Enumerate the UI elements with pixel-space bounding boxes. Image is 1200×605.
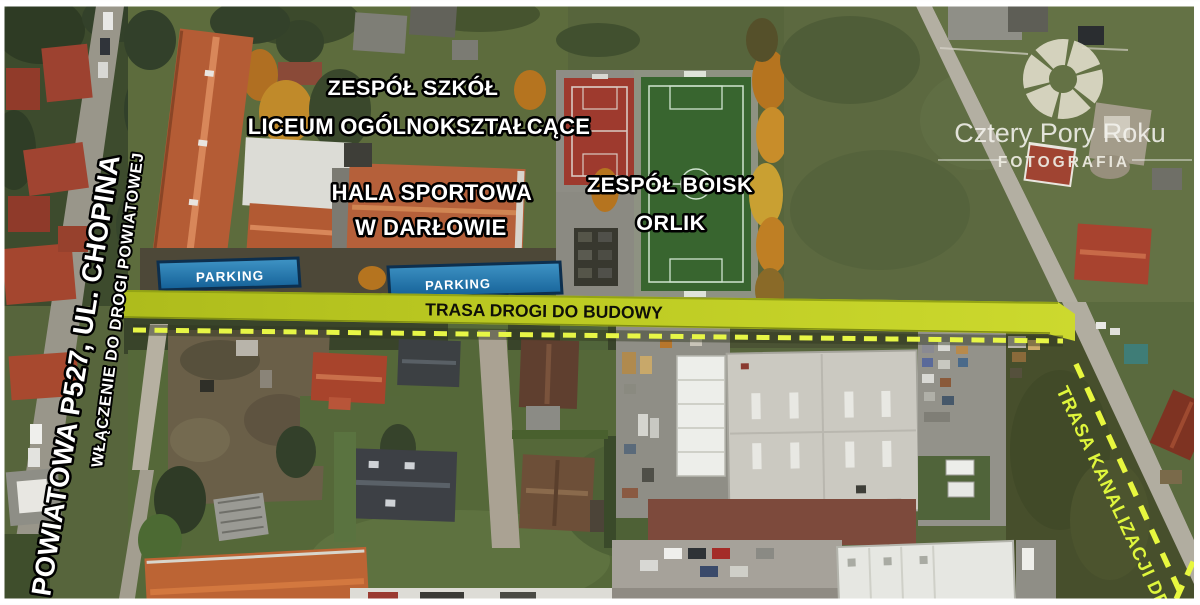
svg-text:ZESPÓŁ BOISK: ZESPÓŁ BOISK [587,172,753,197]
svg-text:LICEUM OGÓLNOKSZTAŁCĄCE: LICEUM OGÓLNOKSZTAŁCĄCE [248,114,591,139]
svg-text:FOTOGRAFIA: FOTOGRAFIA [998,154,1130,171]
svg-text:PARKING: PARKING [196,268,265,285]
svg-text:W DARŁOWIE: W DARŁOWIE [355,215,507,240]
svg-text:ZESPÓŁ SZKÓŁ: ZESPÓŁ SZKÓŁ [328,75,499,100]
svg-text:Cztery Pory Roku: Cztery Pory Roku [954,118,1166,148]
svg-text:ORLIK: ORLIK [636,211,705,235]
svg-text:HALA SPORTOWA: HALA SPORTOWA [332,180,533,205]
svg-text:PARKING: PARKING [425,276,491,293]
svg-text:TRASA DROGI DO BUDOWY: TRASA DROGI DO BUDOWY [425,299,663,322]
